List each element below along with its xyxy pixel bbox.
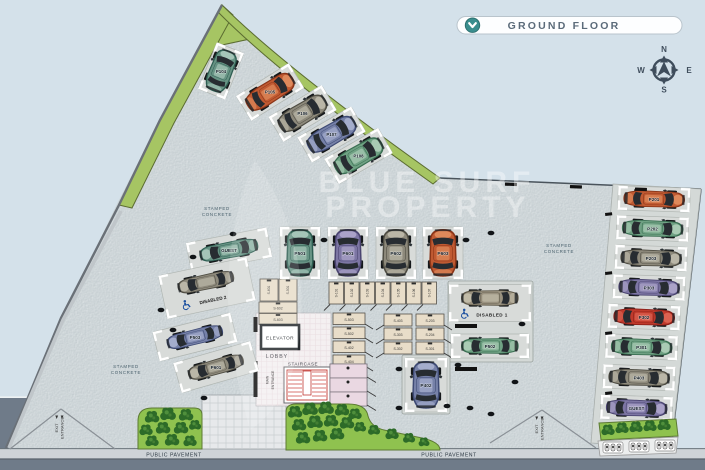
svg-text:EXIT: EXIT (54, 423, 59, 432)
svg-text:S-404: S-404 (344, 360, 353, 364)
svg-text:P403: P403 (634, 376, 645, 381)
svg-text:E: E (686, 66, 692, 75)
svg-text:S-106: S-106 (412, 288, 416, 297)
svg-text:GUEST: GUEST (629, 406, 645, 411)
svg-text:S-103: S-103 (365, 288, 369, 297)
svg-text:S-403: S-403 (393, 319, 402, 323)
svg-text:P105: P105 (265, 90, 276, 95)
svg-text:P603: P603 (437, 251, 449, 257)
svg-text:CONCRETE: CONCRETE (544, 249, 574, 254)
svg-text:STAMPED: STAMPED (546, 243, 572, 248)
svg-text:S-402: S-402 (344, 346, 353, 350)
svg-text:DISABLED 1: DISABLED 1 (476, 313, 507, 318)
svg-text:P303: P303 (644, 286, 655, 291)
svg-text:S-204: S-204 (425, 333, 434, 337)
svg-text:PUBLIC PAVEMENT: PUBLIC PAVEMENT (146, 453, 202, 459)
svg-text:CONCRETE: CONCRETE (202, 212, 232, 217)
svg-text:S-107: S-107 (427, 288, 431, 297)
svg-text:P301: P301 (636, 345, 647, 350)
svg-text:EXIT: EXIT (534, 424, 539, 433)
svg-text:S-105: S-105 (396, 288, 400, 297)
svg-text:P503: P503 (190, 335, 201, 340)
svg-text:PUBLIC PAVEMENT: PUBLIC PAVEMENT (421, 453, 477, 459)
svg-text:P202: P202 (647, 227, 658, 232)
svg-text:P107: P107 (326, 132, 337, 137)
svg-text:S-503: S-503 (344, 318, 353, 322)
svg-text:S-303: S-303 (393, 333, 402, 337)
svg-text:CONCRETE: CONCRETE (111, 370, 141, 375)
svg-text:P201: P201 (649, 197, 660, 202)
svg-text:P402: P402 (420, 383, 432, 389)
svg-text:P602: P602 (390, 251, 402, 257)
svg-text:S-104: S-104 (381, 288, 385, 297)
svg-text:P302: P302 (639, 315, 650, 320)
svg-text:ENTRANCE: ENTRANCE (60, 417, 65, 439)
svg-text:P106: P106 (297, 111, 308, 116)
svg-text:S-502: S-502 (344, 332, 353, 336)
svg-text:ENTRANCE: ENTRANCE (540, 418, 545, 440)
svg-text:S-101: S-101 (334, 288, 338, 297)
svg-text:P203: P203 (646, 256, 657, 261)
svg-text:STAMPED: STAMPED (113, 364, 139, 369)
svg-text:S-302: S-302 (393, 347, 402, 351)
svg-text:S-102: S-102 (350, 288, 354, 297)
svg-text:GROUND FLOOR: GROUND FLOOR (508, 20, 621, 32)
svg-text:P108: P108 (353, 154, 364, 159)
svg-text:P601: P601 (342, 251, 354, 257)
svg-text:W: W (637, 66, 645, 75)
svg-text:P601: P601 (211, 365, 222, 370)
svg-text:P502: P502 (485, 344, 496, 349)
svg-text:S-301: S-301 (425, 347, 434, 351)
svg-text:P104: P104 (216, 69, 227, 74)
svg-text:N: N (661, 45, 667, 54)
svg-text:S: S (661, 86, 667, 95)
svg-text:STAMPED: STAMPED (204, 206, 230, 211)
svg-text:S-203: S-203 (425, 319, 434, 323)
svg-text:PROPERTY: PROPERTY (325, 191, 530, 224)
